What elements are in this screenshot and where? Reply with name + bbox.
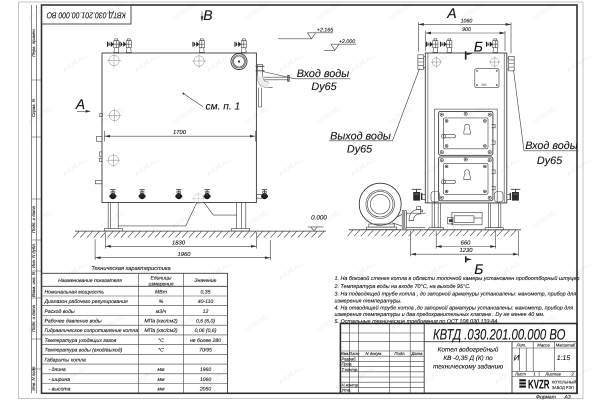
svg-text:Вход воды: Вход воды [297, 68, 349, 80]
svg-text:%: % [159, 299, 164, 305]
svg-text:Рабочее давление воды: Рабочее давление воды [45, 319, 102, 325]
svg-text:Температура уходящих газов: Температура уходящих газов [45, 338, 117, 344]
svg-text:Масштаб: Масштаб [556, 343, 576, 348]
svg-text:0,6 (6,0): 0,6 (6,0) [196, 319, 215, 325]
svg-text:Котел водогрейный: Котел водогрейный [438, 346, 499, 353]
svg-text:Лит.: Лит. [516, 343, 527, 348]
svg-text:Инв. N подл.: Инв. N подл. [31, 365, 36, 390]
svg-text:2050: 2050 [199, 387, 211, 393]
svg-text:КВТД.030.201.00.000 ВО: КВТД.030.201.00.000 ВО [46, 10, 125, 20]
svg-text:+2.165: +2.165 [317, 27, 333, 33]
svg-text:900: 900 [462, 27, 471, 33]
svg-text:1060: 1060 [200, 377, 211, 383]
svg-text:техническому заданию: техническому заданию [433, 364, 503, 371]
svg-text:- ширина: - ширина [49, 377, 71, 383]
svg-text:0,06 (0,6): 0,06 (0,6) [195, 328, 217, 334]
svg-text:1: 1 [533, 372, 535, 377]
svg-text:Температура воды (вход/выход): Температура воды (вход/выход) [45, 348, 123, 354]
svg-text:Справ. N: Справ. N [31, 98, 36, 117]
svg-text:Dy65: Dy65 [311, 81, 337, 93]
svg-text:Утв.: Утв. [342, 388, 352, 393]
svg-text:1960: 1960 [178, 251, 192, 258]
svg-text:1:15: 1:15 [557, 355, 571, 362]
svg-text:Диапазон рабочего регулировани: Диапазон рабочего регулирования [44, 299, 128, 305]
svg-text:Наименование показателя: Наименование показателя [58, 278, 122, 284]
svg-text:- высота: - высота [49, 387, 71, 393]
svg-text:12: 12 [203, 309, 209, 315]
svg-text:А: А [446, 5, 456, 21]
svg-text:Масса: Масса [537, 343, 550, 348]
svg-text:Номинальная мощность: Номинальная мощность [45, 289, 105, 295]
svg-text:0,35: 0,35 [201, 289, 211, 295]
svg-text:Подп. и дата: Подп. и дата [31, 304, 36, 332]
svg-text:КВ -0,35 Д (К) по: КВ -0,35 Д (К) по [443, 355, 493, 362]
svg-text:Гидравлическое сопротивление к: Гидравлическое сопротивление котла [45, 328, 139, 334]
svg-text:4. На отводящей трубе котла ,: 4. На отводящей трубе котла ,до запорной… [335, 305, 574, 311]
svg-text:Габариты котла: Габариты котла [45, 357, 86, 363]
svg-text:Dy65: Dy65 [347, 143, 373, 155]
svg-text:КОТЕЛЬНЫЙ: КОТЕЛЬНЫЙ [552, 379, 577, 384]
svg-text:мм: мм [158, 387, 165, 393]
svg-text:Расход воды: Расход воды [45, 309, 75, 315]
svg-text:Подп. и дата: Подп. и дата [31, 205, 36, 233]
svg-text:Инв. N дубл.: Инв. N дубл. [31, 243, 36, 268]
svg-text:1960: 1960 [200, 367, 211, 373]
svg-text:Dy65: Dy65 [537, 155, 563, 167]
svg-text:3. На подводящей трубе котла: 3. На подводящей трубе котла , до запорн… [335, 292, 577, 298]
svg-text:м3/ч: м3/ч [156, 309, 167, 315]
svg-text:°С: °С [158, 348, 164, 354]
svg-text:Значение: Значение [195, 278, 217, 284]
svg-text:°С: °С [158, 338, 164, 344]
svg-text:Формат: Формат [536, 395, 556, 400]
svg-text:Б: Б [474, 38, 483, 54]
svg-text:- длина: - длина [49, 367, 66, 373]
svg-text:2. Температура воды на входе: 2. Температура воды на входе 70°С, на вы… [334, 284, 471, 290]
svg-text:Листов: Листов [544, 372, 561, 377]
svg-text:измерения температуры.: измерения температуры. [335, 299, 402, 305]
svg-text:1700: 1700 [173, 129, 187, 136]
svg-text:измерения: измерения [148, 281, 173, 287]
svg-text:см. п. 1: см. п. 1 [206, 101, 241, 112]
svg-text:660: 660 [461, 240, 471, 247]
svg-text:Подп.: Подп. [394, 351, 405, 356]
svg-text:1230: 1230 [460, 247, 474, 254]
svg-text:40-110: 40-110 [198, 299, 214, 305]
svg-text:МПа (кгс/см2): МПа (кгс/см2) [144, 319, 178, 325]
svg-text:Т.контр.: Т.контр. [342, 367, 359, 372]
svg-text:N докум.: N докум. [366, 351, 383, 356]
svg-text:0.000: 0.000 [311, 215, 327, 222]
svg-text:МПа (кгс/см2): МПа (кгс/см2) [144, 328, 178, 334]
svg-text:Дата: Дата [410, 351, 423, 356]
svg-text:мм: мм [158, 367, 165, 373]
svg-text:И: И [514, 354, 520, 363]
svg-text:ЗАВОД РЭП: ЗАВОД РЭП [552, 385, 574, 390]
svg-text:+2.000: +2.000 [339, 39, 355, 45]
svg-text:Взам. инв. N: Взам. инв. N [31, 271, 36, 297]
svg-text:А3: А3 [564, 395, 571, 400]
svg-text:А: А [75, 96, 85, 112]
svg-text:Перв. примен.: Перв. примен. [31, 28, 36, 57]
svg-text:Вход воды: Вход воды [525, 140, 577, 152]
svg-text:1. На боковой стенке котла в: 1. На боковой стенке котла в области топ… [335, 276, 580, 282]
svg-text:Б: Б [474, 261, 483, 277]
svg-text:Техническая характеристика: Техническая характеристика [91, 266, 170, 272]
svg-text:не более 280: не более 280 [190, 338, 221, 344]
svg-text:70/95: 70/95 [199, 348, 212, 354]
svg-text:1060: 1060 [461, 19, 473, 25]
svg-text:КВТД .030.201.00.000 ВО: КВТД .030.201.00.000 ВО [433, 326, 566, 343]
svg-text:В: В [203, 7, 212, 23]
svg-text:измерения температуры и два пр: измерения температуры и два предохраните… [335, 312, 545, 318]
svg-text:МВт: МВт [155, 289, 167, 295]
svg-text:Лист: Лист [514, 372, 526, 377]
svg-text:1830: 1830 [172, 239, 186, 246]
svg-text:мм: мм [158, 377, 165, 383]
svg-text:KVZR: KVZR [528, 378, 550, 392]
